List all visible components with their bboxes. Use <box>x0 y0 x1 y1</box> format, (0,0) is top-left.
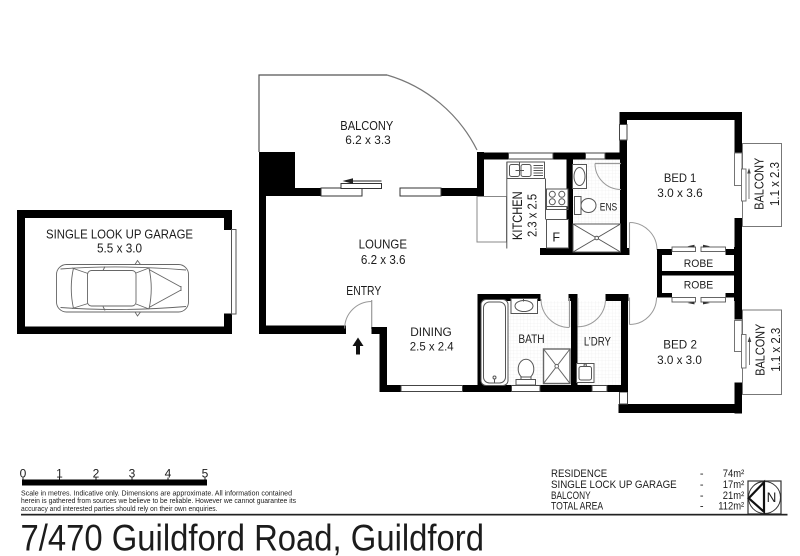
svg-text:BED 1: BED 1 <box>664 171 697 185</box>
svg-text:BALCONY: BALCONY <box>754 323 768 376</box>
svg-text:ENTRY: ENTRY <box>346 284 381 298</box>
svg-text:ROBE: ROBE <box>684 280 713 292</box>
svg-text:6.2 x 3.3: 6.2 x 3.3 <box>345 133 391 147</box>
svg-text:5.5 x 3.0: 5.5 x 3.0 <box>97 241 142 255</box>
svg-text:112m²: 112m² <box>718 501 744 513</box>
svg-text:1.1 x 2.3: 1.1 x 2.3 <box>768 162 782 206</box>
svg-text:ROBE: ROBE <box>684 258 713 270</box>
svg-text:2.3 x 2.5: 2.3 x 2.5 <box>525 194 539 237</box>
svg-text:BALCONY: BALCONY <box>752 157 766 210</box>
svg-text:KITCHEN: KITCHEN <box>509 191 525 240</box>
svg-text:ENS: ENS <box>600 202 617 214</box>
svg-text:6.2 x 3.6: 6.2 x 3.6 <box>361 252 406 267</box>
svg-text:BALCONY: BALCONY <box>340 118 393 133</box>
svg-text:2.5 x 2.4: 2.5 x 2.4 <box>410 340 454 354</box>
svg-text:SINGLE LOOK UP GARAGE: SINGLE LOOK UP GARAGE <box>46 228 193 242</box>
svg-text:DINING: DINING <box>410 325 452 339</box>
svg-text:accuracy and interested partie: accuracy and interested parties should r… <box>21 506 218 513</box>
svg-text:L’DRY: L’DRY <box>584 334 611 348</box>
svg-text:N: N <box>767 490 777 505</box>
svg-text:LOUNGE: LOUNGE <box>359 237 408 252</box>
svg-text:3.0 x 3.0: 3.0 x 3.0 <box>657 353 702 367</box>
svg-text:BED 2: BED 2 <box>663 337 697 351</box>
svg-text:1.1 x 2.3: 1.1 x 2.3 <box>769 328 783 372</box>
svg-text:herein is gathered from source: herein is gathered from sources we belie… <box>21 498 296 505</box>
svg-text:3.0 x 3.6: 3.0 x 3.6 <box>657 186 703 200</box>
svg-text:BATH: BATH <box>518 333 544 346</box>
svg-text:-: - <box>700 501 704 513</box>
svg-text:Scale in metres. Indicative on: Scale in metres. Indicative only. Dimens… <box>21 491 292 498</box>
svg-text:7/470 Guildford Road, Guildfor: 7/470 Guildford Road, Guildford <box>21 517 485 556</box>
svg-text:F: F <box>552 231 560 245</box>
svg-text:TOTAL AREA: TOTAL AREA <box>551 501 604 513</box>
